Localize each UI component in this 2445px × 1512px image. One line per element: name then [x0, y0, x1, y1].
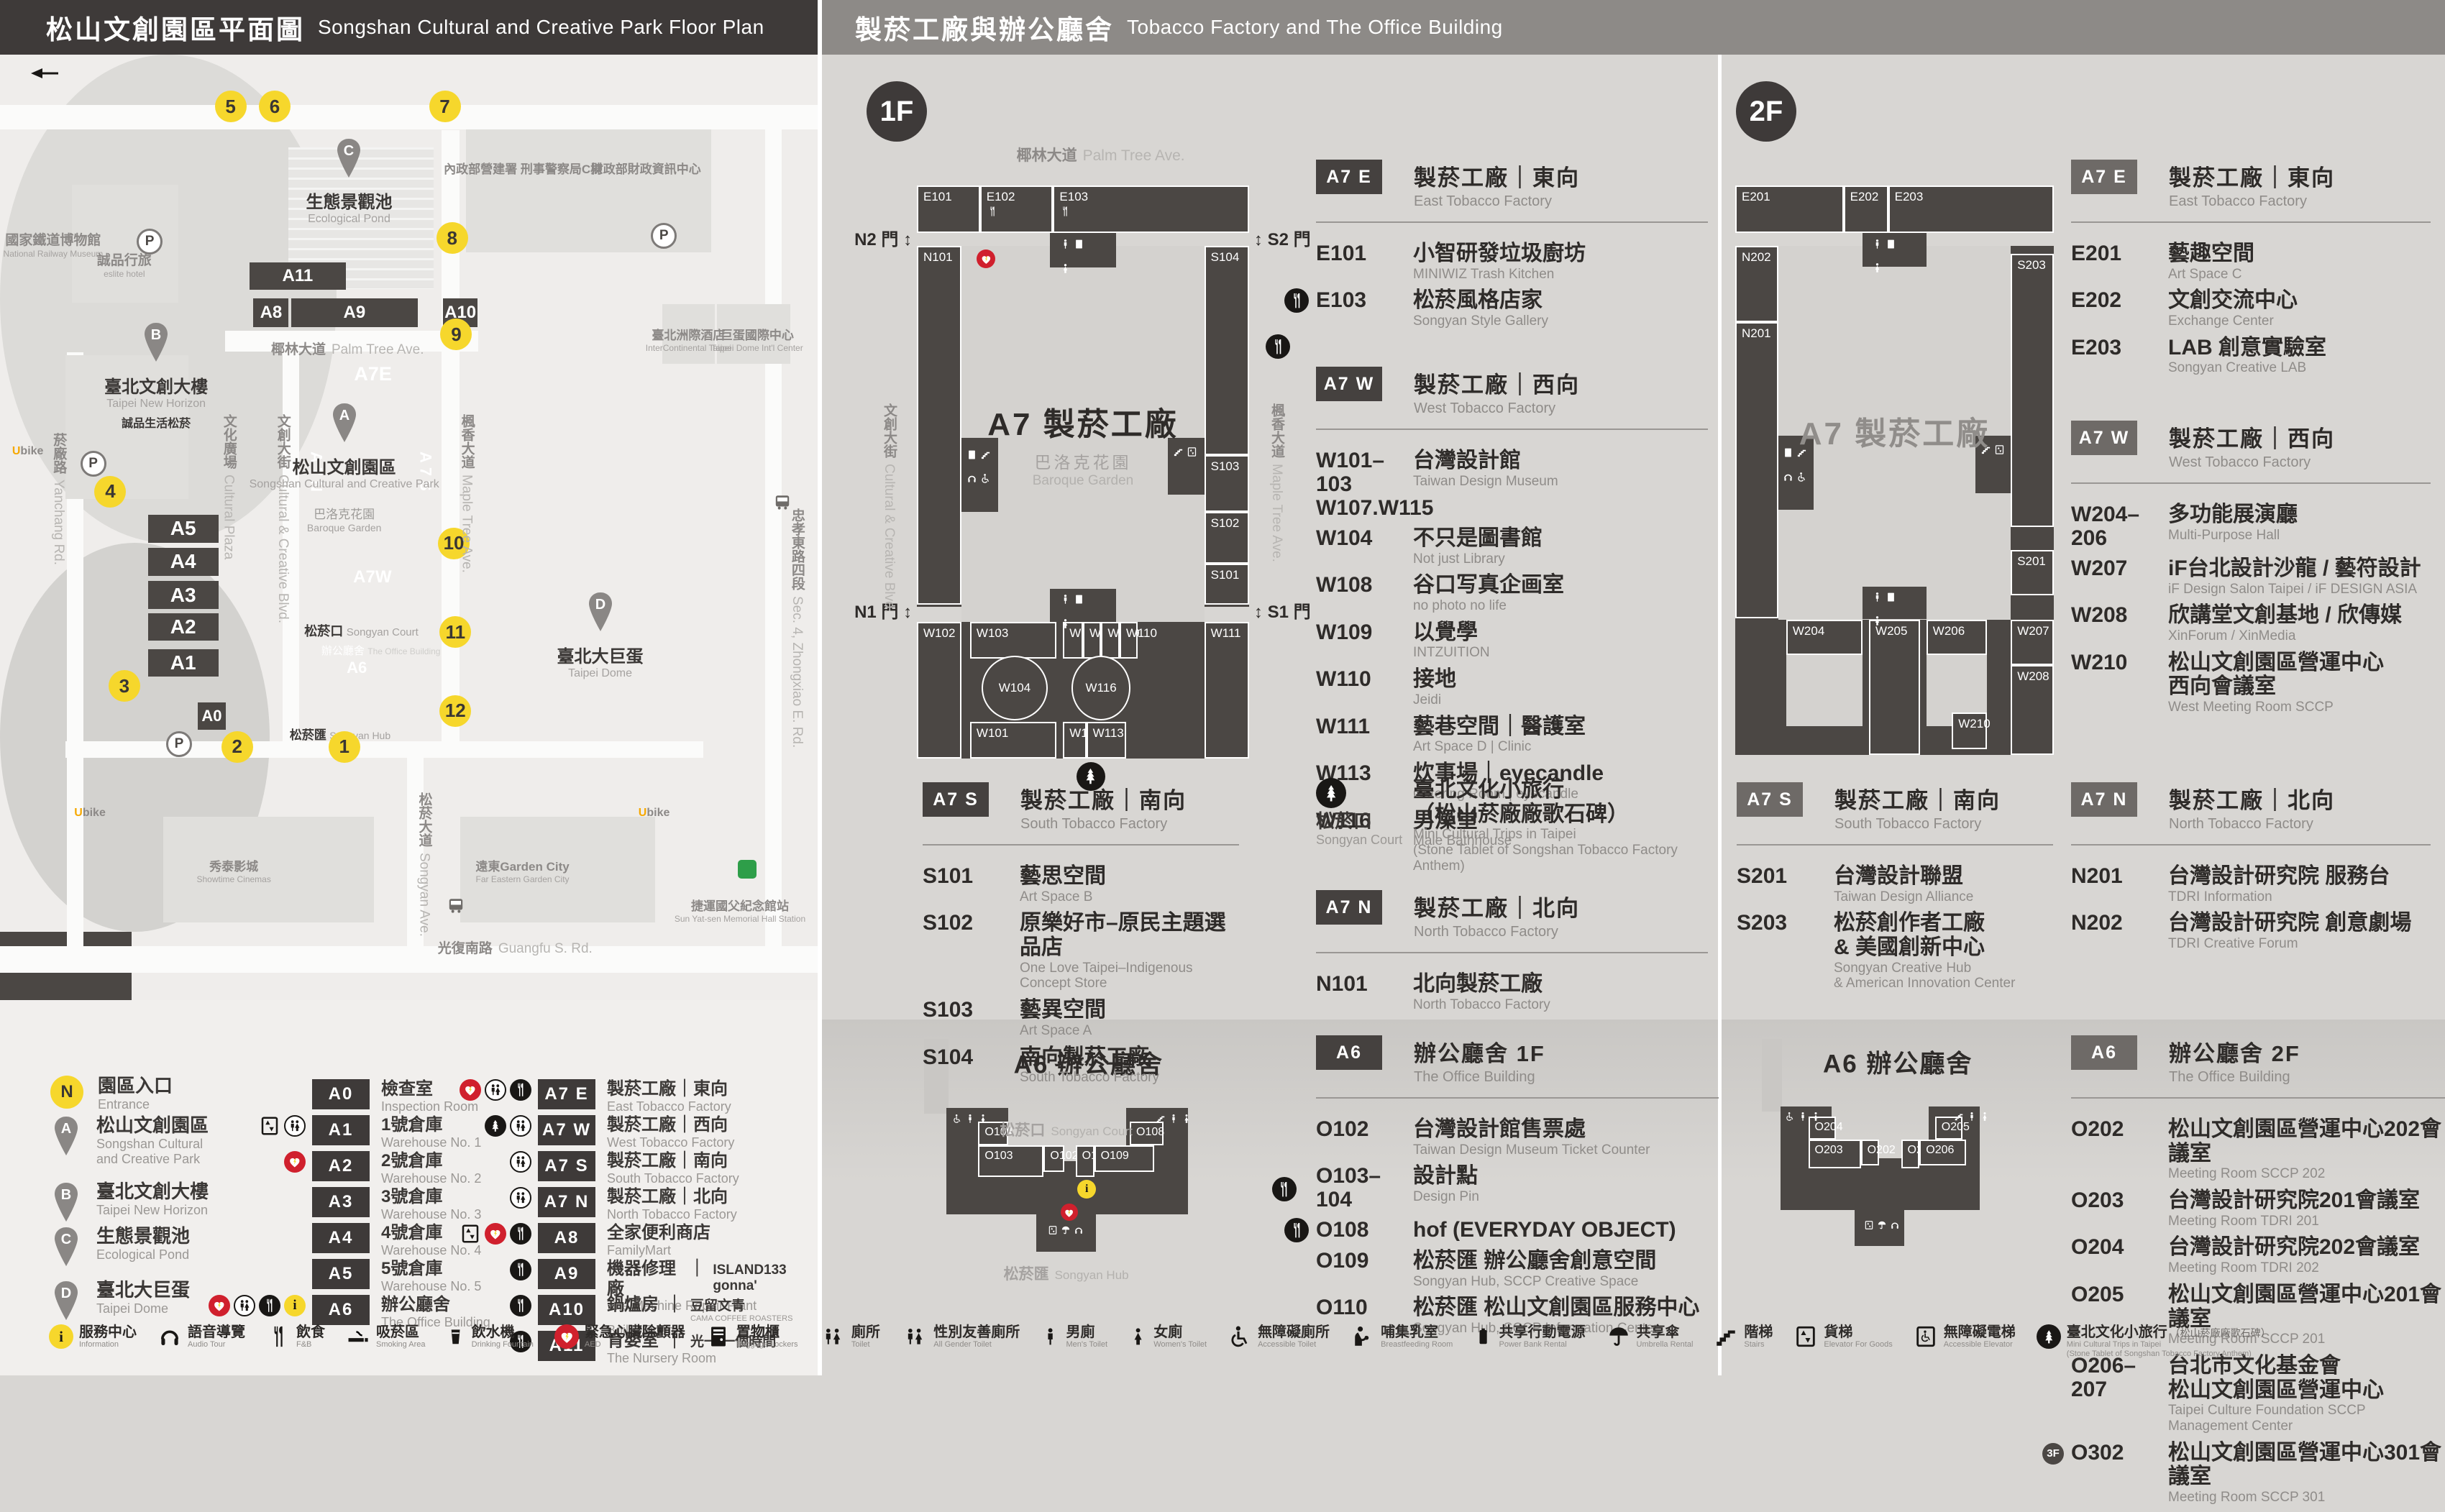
plan-room-S104: S104 [1205, 246, 1249, 454]
room-code: E202 [2071, 288, 2168, 329]
section-chip: A6 [1316, 1035, 1382, 1070]
legend-chip-A4: A4 [312, 1223, 370, 1253]
plan-room-W113: W113 [1087, 722, 1126, 759]
section-zh: 製菸工廠｜東向 [2169, 160, 2335, 192]
legend-icons [460, 1223, 538, 1245]
room-name-en: Art Space B [1020, 889, 1106, 905]
baroque-garden-label: 巴洛克花園Baroque Garden [307, 504, 382, 533]
room-code: S103 [923, 998, 1020, 1038]
amenity-en: Elevator For Goods [1824, 1340, 1892, 1350]
legend-chip-A8: A8 [538, 1223, 595, 1253]
legend-icons [510, 1295, 538, 1316]
map-road [0, 946, 818, 973]
room-code: W111 [1316, 715, 1413, 755]
legend-chip-A7 E: A7 E [538, 1079, 595, 1109]
directory-item-O109: O109 松菸匯 辦公廳舍創意空間 Songyan Hub, SCCP Crea… [1316, 1249, 1719, 1289]
aed-icon [1061, 1204, 1078, 1221]
map-poi-3: 財政部財政資訊中心 [591, 159, 701, 177]
section-chip: A7 S [923, 782, 989, 817]
amenity-smoking-area: 吸菸區 Smoking Area [346, 1324, 425, 1352]
room-name-zh: 文創交流中心 [2168, 288, 2298, 313]
room-name-zh: 台灣設計研究院201會議室 [2168, 1188, 2420, 1213]
plan-room-S203: S203 [2011, 254, 2054, 527]
directory-item-S103: S103 藝異空間 Art Space A [923, 998, 1239, 1038]
section-zh: 製菸工廠｜西向 [2169, 421, 2335, 453]
section-en: North Tobacco Factory [2169, 816, 2335, 833]
section-1f-e: A7 E 製菸工廠｜東向 East Tobacco Factory E101 小… [1316, 160, 1708, 336]
room-name-en: Taiwan Design Alliance [1834, 889, 1973, 905]
floor-3f-badge: 3F [2042, 1443, 2064, 1465]
road-label-2: 文創大街Cultural & Creative Blvd. [273, 414, 293, 623]
room-name-zh: LAB 創意實驗室 [2168, 336, 2326, 360]
a6-room-O102: O102 [1043, 1145, 1064, 1172]
section-zh: 製菸工廠｜北向 [1414, 890, 1580, 922]
ubike-icon: Ubike [12, 445, 44, 458]
tree-icon [2037, 1324, 2061, 1349]
plan-road-top: 椰林大道Palm Tree Ave. [1017, 144, 1185, 165]
legend-pin-A: A松山文創園區Songshan Culturaland Creative Par… [50, 1115, 209, 1168]
room-name-zh: 藝思空間 [1020, 864, 1106, 889]
map-poi-6: 秀泰影城Showtime Cinemas [196, 856, 270, 884]
a6-room-O203: O203 [1809, 1140, 1861, 1168]
svg-text:C: C [344, 142, 354, 158]
road-label-7: 光復南路Guangfu S. Rd. [438, 938, 593, 957]
legend-icons: i [209, 1295, 312, 1316]
room-code: E103 [1316, 288, 1413, 329]
room-name-zh: 台灣設計館 [1413, 449, 1558, 473]
section-a6-2f: A6 辦公廳舍 2F The Office Building O202 松山文創… [2071, 1035, 2445, 1512]
amenity-women-s-toilet: 女廁 Women's Toilet [1128, 1324, 1207, 1352]
map-building-A5: A5 [148, 515, 219, 542]
section-en: South Tobacco Factory [1020, 816, 1187, 833]
section-en: West Tobacco Factory [1414, 400, 1580, 417]
room-code: S201 [1737, 864, 1834, 904]
restaurant-icon [1284, 1218, 1309, 1242]
men-icon [1169, 1114, 1179, 1130]
room-name-zh: 台灣設計研究院202會議室 [2168, 1235, 2420, 1260]
tree-icon [485, 1115, 506, 1137]
room-name-zh: 松菸風格店家 [1413, 288, 1548, 313]
directory-item-S201: S201 台灣設計聯盟 Taiwan Design Alliance [1737, 864, 2053, 904]
plan-room-E102: E102 [980, 185, 1054, 233]
room-code: O108 [1316, 1218, 1413, 1242]
entrance-marker-12: 12 [439, 695, 471, 727]
amenity-f-b: 飲食 F&B [266, 1324, 325, 1352]
elev-icon [1864, 1220, 1874, 1246]
toilet-icon [510, 1187, 531, 1209]
room-name-en: Meeting Room TDRI 202 [2168, 1260, 2420, 1276]
legend-zh: 松山文創園區 [96, 1115, 209, 1137]
plan-gate-S1門: ↕ S1 門 [1254, 597, 1311, 623]
aed-icon [554, 1324, 579, 1349]
directory-item-O202: O202 松山文創園區營運中心202會議室 Meeting Room SCCP … [2071, 1117, 2445, 1182]
directory-item-E202: E202 文創交流中心 Exchange Center [2071, 288, 2431, 329]
section-chip: A7 E [2071, 160, 2137, 194]
legend-chip-A0: A0 [312, 1079, 370, 1109]
room-code: S102 [923, 911, 1020, 991]
legend-chip-A9: A9 [538, 1259, 595, 1289]
room-name-en: Art Space A [1020, 1023, 1106, 1039]
restaurant-icon [510, 1259, 531, 1280]
locker-icon [1074, 594, 1084, 615]
court-en: Songyan Court [1316, 833, 1413, 848]
room-name-zh: 台灣設計館售票處 [1413, 1117, 1650, 1142]
amenity-zh: 共享行動電源 [1499, 1324, 1586, 1340]
room-code: O103–104 [1316, 1164, 1413, 1211]
room-name-zh: 以覺學 [1413, 620, 1490, 645]
room-name-en: Taiwan Design Museum Ticket Counter [1413, 1142, 1650, 1158]
men-icon [1060, 594, 1071, 615]
floor-badge-2f: 2F [1736, 81, 1796, 142]
directory-item-W208: W208 欣講堂文創基地 / 欣傳媒 XinForum / XinMedia [2071, 603, 2431, 643]
amenity-toilet: 廁所 Toilet [819, 1324, 880, 1352]
a6-aed-icon [1061, 1204, 1078, 1221]
directory-item-S104: S104 南向製菸工廠 South Tobacco Factory [923, 1045, 1239, 1086]
room-name-zh: 松菸創作者工廠& 美國創新中心 [1834, 911, 2015, 959]
a6-room-O202: O202 [1861, 1140, 1880, 1165]
entrance-marker-6: 6 [259, 91, 291, 122]
plan-room-W210: W210 [1952, 713, 1987, 749]
plan-room-W206: W206 [1927, 620, 1987, 656]
legend-zh: 生態景觀池 [96, 1226, 190, 1247]
road-label-5: 松菸大道Songyan Ave. [414, 792, 434, 937]
a6-stub [1762, 1039, 1782, 1075]
court-title-zh: 臺北文化小旅行（松山菸廠廠歌石碑） [1413, 778, 1708, 826]
map-building-A11: A11 [250, 262, 346, 290]
locker-icon [1886, 239, 1896, 260]
section-divider [2071, 482, 2431, 484]
svg-text:D: D [595, 597, 605, 613]
women-icon [1060, 263, 1071, 285]
section-divider [923, 844, 1239, 846]
section-zh: 製菸工廠｜南向 [1834, 782, 2001, 815]
floorplan-1f: E101E102E103N101W102S104S103S102S101W111… [917, 185, 1249, 759]
room-code: N202 [2071, 911, 2168, 951]
a6-plan-title: A6 辦公廳舍 [1823, 1044, 1973, 1081]
a6-icons-stem [1048, 1225, 1092, 1252]
audio-icon [1890, 1220, 1900, 1246]
plan-room-E203: E203 [1888, 185, 2054, 233]
audio-icon [1783, 472, 1793, 493]
legend-pin-D: D臺北大巨蛋Taipei Dome [50, 1280, 190, 1321]
directory-item-E103: E103 松菸風格店家 Songyan Style Gallery [1316, 288, 1708, 329]
section-divider [2071, 844, 2431, 846]
a7w-label: A7W [353, 567, 391, 587]
section-zh: 製菸工廠｜北向 [2169, 782, 2335, 815]
plan-inset [1786, 655, 1863, 726]
entrance-marker-1: 1 [329, 731, 360, 763]
room-code: O203 [2071, 1188, 2168, 1229]
aed-icon [977, 249, 995, 268]
section-divider [1737, 844, 2053, 846]
map-poi-7: 遠東Garden CityFar Eastern Garden City [475, 856, 569, 884]
room-code: N201 [2071, 864, 2168, 904]
entrance-marker-3: 3 [109, 670, 140, 702]
amenity-accessible-elevator: 無障礙電梯 Accessible Elevator [1914, 1324, 2016, 1352]
room-name-en: One Love Taipei–Indigenous Concept Store [1020, 961, 1239, 992]
amenity-breastfeeding-room: 哺集乳室 Breastfeeding Room [1351, 1324, 1453, 1352]
amenity-en: AED [585, 1340, 685, 1350]
room-code: W108 [1316, 573, 1413, 613]
amenity-drinking-fountain: 飲水機 Drinking Fountain [446, 1324, 533, 1352]
map-pin-label-B: 臺北文創大樓Taipei New Horizon誠品生活松菸 [104, 372, 208, 431]
park-map: A11A8A9A10A5A4A3A2A1A0A7EA7NA7SA7W松菸口 So… [0, 55, 818, 1000]
amenity-zh: 置物櫃 [736, 1324, 780, 1340]
section-divider [1316, 952, 1708, 953]
info-icon: i [284, 1295, 306, 1316]
plan-road-right: 楓香大道Maple Tree Ave. [1267, 403, 1287, 562]
section-chip: A7 S [1737, 782, 1803, 817]
legend-en: Songshan Culturaland Creative Park [96, 1137, 209, 1168]
room-name-en: Songyan Creative Hub& American Innovatio… [1834, 961, 2015, 992]
restaurant-icon [510, 1223, 531, 1245]
room-name-zh: 台灣設計研究院 服務台 [2168, 864, 2390, 889]
legend-en: Ecological Pond [96, 1247, 190, 1263]
aed-icon [284, 1151, 306, 1173]
plan-aed-icon [977, 249, 995, 268]
amenity-en: Audio Tour [188, 1340, 245, 1350]
entrance-marker-5: 5 [215, 91, 247, 122]
plan-room-S103: S103 [1205, 455, 1249, 513]
a6-icons-right [1954, 1112, 1997, 1127]
road-label-4: 菸廠路Yanchang Rd. [49, 433, 68, 565]
parking-icon: P [651, 223, 677, 249]
room-code: W208 [2071, 603, 2168, 643]
room-name-zh: 松山文創園區營運中心西向會議室 [2168, 651, 2384, 699]
directory-item-O302: 3FO302 松山文創園區營運中心301會議室 Meeting Room SCC… [2071, 1441, 2445, 1506]
amenity-information: i 服務中心 Information [49, 1324, 137, 1350]
room-name-en: North Tobacco Factory [1413, 997, 1550, 1013]
section-a6-1f: A6 辦公廳舍 1F The Office Building O102 台灣設計… [1316, 1035, 1719, 1343]
amenity-en: All Gender Toilet [933, 1340, 1020, 1350]
amenity-zh: 無障礙電梯 [1944, 1324, 2016, 1340]
audio-icon [1074, 1225, 1084, 1252]
amenity-all-gender-toilet: 性別友善廁所 All Gender Toilet [901, 1324, 1020, 1352]
elev-icon [1994, 444, 2005, 490]
amenity-zh: 無障礙廁所 [1258, 1324, 1330, 1340]
svg-text:A: A [339, 408, 349, 423]
plan-room-E201: E201 [1735, 185, 1844, 233]
entrance-marker-11: 11 [439, 616, 471, 648]
directory-item-E101: E101 小智研發垃圾廚坊 MINIWIZ Trash Kitchen [1316, 242, 1708, 282]
svg-text:B: B [151, 327, 161, 343]
plan-room-W116: W116 [1071, 656, 1131, 720]
section-divider [2071, 221, 2431, 223]
plan-room-W111: W111 [1205, 622, 1249, 759]
section-en: West Tobacco Factory [2169, 454, 2335, 471]
section-zh: 製菸工廠｜南向 [1020, 782, 1187, 815]
songyan-court-label: 松菸口 Songyan Court [304, 621, 419, 640]
map-building-A1: A1 [148, 649, 219, 677]
a6-restaurant-icon [1272, 1177, 1297, 1201]
plan-room-W103: W103 [970, 622, 1056, 658]
plan-icon-cluster [1872, 239, 1904, 284]
restaurant-icon [1266, 334, 1290, 359]
plan-room-E103: E103 [1053, 185, 1249, 233]
section-zh: 製菸工廠｜東向 [1414, 160, 1580, 192]
map-pin-label-D: 臺北大巨蛋Taipei Dome [557, 642, 644, 680]
map-building-A9: A9 [291, 298, 418, 326]
legend-row-A7W: A7 W 製菸工廠｜西向West Tobacco Factory [538, 1115, 734, 1150]
plan-room-W101: W101 [970, 722, 1056, 759]
room-name-zh: 原樂好市–原民主題選品店 [1020, 911, 1239, 959]
map-road [0, 105, 818, 129]
legend-chip-A1: A1 [312, 1115, 370, 1145]
room-name-en: Meeting Room TDRI 201 [2168, 1214, 2420, 1229]
room-name-zh: 接地 [1413, 667, 1456, 692]
bus-stop-icon [773, 492, 792, 515]
amenity-en: Power Bank Rental [1499, 1340, 1586, 1350]
room-code: 3FO302 [2071, 1441, 2168, 1506]
a7e-label: A7E [354, 363, 392, 385]
women-icon [978, 1114, 988, 1130]
a6-icons-right [1156, 1114, 1208, 1130]
svg-text:B: B [61, 1187, 71, 1203]
plan-icon-cluster [1060, 594, 1093, 640]
directory-item-W104: W104 不只是圖書館 Not just Library [1316, 526, 1708, 567]
room-name-zh: 欣講堂文創基地 / 欣傳媒 [2168, 603, 2402, 628]
page-title-zh: 松山文創園區平面圖 [46, 8, 305, 47]
entrance-marker-4: 4 [94, 476, 126, 508]
restaurant-icon [1284, 288, 1309, 313]
audio-icon [966, 473, 977, 495]
elev-icon [1048, 1225, 1058, 1252]
directory-item-W110: W110 接地 Jeidi [1316, 667, 1708, 707]
office-lbl: 辦公廳舍 The Office Building [321, 643, 441, 658]
a6-info-icon: i [1077, 1180, 1096, 1199]
room-name-en: Not just Library [1413, 551, 1543, 567]
plan-room-E202: E202 [1844, 185, 1888, 233]
plan-gate-S2門: ↕ S2 門 [1254, 225, 1311, 250]
legend-chip-A5: A5 [312, 1259, 370, 1289]
info-icon: i [49, 1324, 73, 1349]
header-right: 製菸工廠與辦公廳舍 Tobacco Factory and The Office… [822, 0, 2445, 55]
room-code: W104 [1316, 526, 1413, 567]
legend-zh: 臺北大巨蛋 [96, 1280, 190, 1301]
directory-item-W109: W109 以覺學 INTZUITION [1316, 620, 1708, 661]
plan-restaurant-right [1266, 334, 1290, 359]
section-divider [1316, 429, 1708, 430]
locker-icon [1783, 447, 1793, 469]
legend-row-A5: A5 5號倉庫Warehouse No. 5 [312, 1259, 481, 1294]
section-1f-s: A7 S 製菸工廠｜南向 South Tobacco Factory S101 … [923, 782, 1239, 1092]
section-2f-e: A7 E 製菸工廠｜東向 East Tobacco Factory E201 藝… [2071, 160, 2431, 382]
room-code: N101 [1316, 972, 1413, 1012]
amenity-zh: 男廁 [1066, 1324, 1094, 1340]
legend-chip-A3: A3 [312, 1187, 370, 1217]
plan-room-W102: W102 [917, 622, 961, 759]
page-title-en: Songshan Cultural and Creative Park Floo… [318, 16, 764, 39]
amenity-en: Smoking Area [376, 1340, 425, 1350]
section-2f-s: A7 S 製菸工廠｜南向 South Tobacco Factory S201 … [1737, 782, 2053, 998]
amenity-en: Men's Toilet [1066, 1340, 1107, 1350]
a6-hub-label: 松菸匯Songyan Hub [1004, 1263, 1129, 1284]
room-code: O204 [2071, 1235, 2168, 1275]
section-chip: A7 N [1316, 890, 1382, 925]
room-code: W110 [1316, 667, 1413, 707]
directory-item-O204: O204 台灣設計研究院202會議室 Meeting Room TDRI 202 [2071, 1235, 2445, 1275]
plan-room-N202: N202 [1735, 246, 1778, 322]
goods-elevator-icon [1793, 1324, 1818, 1349]
legend-en: Entrance [98, 1097, 173, 1113]
amenity-zh: 緊急心臟除顫器 [585, 1324, 685, 1340]
toilet-icon [510, 1151, 531, 1173]
locker-icon [966, 449, 977, 471]
room-code: W207 [2071, 556, 2168, 597]
map-poi-5: 巨蛋國際中心Taipei Dome Int'l Center [711, 325, 803, 353]
directory-item-S203: S203 松菸創作者工廠& 美國創新中心 Songyan Creative Hu… [1737, 911, 2053, 991]
room-code: O202 [2071, 1117, 2168, 1182]
plan-room-S201: S201 [2011, 550, 2054, 595]
amenity-en: Drinking Fountain [472, 1340, 534, 1350]
aed-icon [209, 1295, 230, 1316]
map-building-A4: A4 [148, 548, 219, 575]
legend-row-A7S: A7 S 製菸工廠｜南向South Tobacco Factory [538, 1151, 739, 1186]
room-name-en: Multi-Purpose Hall [2168, 528, 2298, 544]
section-divider [2071, 1097, 2445, 1099]
umb-icon [1877, 1220, 1887, 1246]
amenity-mini-cultural-trips-in-taipei: 臺北文化小旅行 （松山菸廠廠歌石碑） Mini Cultural Trips i… [2037, 1324, 2271, 1359]
room-name-en: no photo no life [1413, 598, 1564, 614]
room-code: S101 [923, 864, 1020, 904]
stairs-icon [1156, 1114, 1166, 1130]
locker-icon [1074, 239, 1084, 260]
plan-center-title: A7 製菸工廠巴洛克花園Baroque Garden [987, 398, 1178, 489]
section-zh: 辦公廳舍 1F [1414, 1035, 1545, 1068]
legend-en: Taipei Dome [96, 1301, 190, 1317]
room-name-en: XinForum / XinMedia [2168, 628, 2402, 644]
women-icon [1182, 1114, 1192, 1130]
amenity-en: F&B [296, 1340, 325, 1350]
legend-chip-A7 N: A7 N [538, 1187, 595, 1217]
section-zh: 製菸工廠｜西向 [1414, 367, 1580, 399]
plan-room-W109: W109 [1101, 622, 1119, 658]
toilet-icon [234, 1295, 255, 1316]
plan-icon-cluster [1783, 447, 1814, 492]
room-code: O102 [1316, 1117, 1413, 1158]
plan-room-W110: W110 [1120, 622, 1138, 658]
accessible-elevator-icon [1914, 1324, 1938, 1349]
plan-room-N101: N101 [917, 246, 961, 605]
amenity-zh: 貨梯 [1824, 1324, 1852, 1340]
room-name-en: TDRI Creative Forum [2168, 936, 2411, 952]
wheel-icon [1785, 1112, 1795, 1127]
entrance-legend-icon: N [50, 1076, 83, 1109]
room-name-en: Art Space D | Clinic [1413, 739, 1586, 755]
legend-zh: 園區入口 [98, 1076, 173, 1097]
directory-item-W108: W108 谷口写真企画室 no photo no life [1316, 573, 1708, 613]
map-building-A8: A8 [253, 298, 288, 326]
room-name-zh: 多功能展演廳 [2168, 503, 2298, 527]
map-road [65, 741, 703, 759]
room-name-zh: 設計點 [1413, 1164, 1479, 1188]
legend-chip-A7 S: A7 S [538, 1151, 595, 1181]
plan-icon-cluster [1060, 239, 1093, 285]
room-code: E201 [2071, 242, 2168, 282]
room-name-en: Art Space C [2168, 267, 2254, 283]
directory-item-N101: N101 北向製菸工廠 North Tobacco Factory [1316, 972, 1708, 1012]
section-title-en: Tobacco Factory and The Office Building [1127, 16, 1503, 39]
men-icon [1798, 1112, 1808, 1127]
wheelchair-icon [1228, 1324, 1252, 1349]
amenity-men-s-toilet: 男廁 Men's Toilet [1041, 1324, 1107, 1352]
section-chip: A7 N [2071, 782, 2137, 817]
svg-text:C: C [61, 1232, 71, 1247]
map-pin-B: B [140, 321, 172, 367]
room-name-en: South Tobacco Factory [1020, 1070, 1159, 1086]
directory-item-W204–206: W204–206 多功能展演廳 Multi-Purpose Hall [2071, 503, 2431, 550]
women-icon [1872, 262, 1883, 284]
